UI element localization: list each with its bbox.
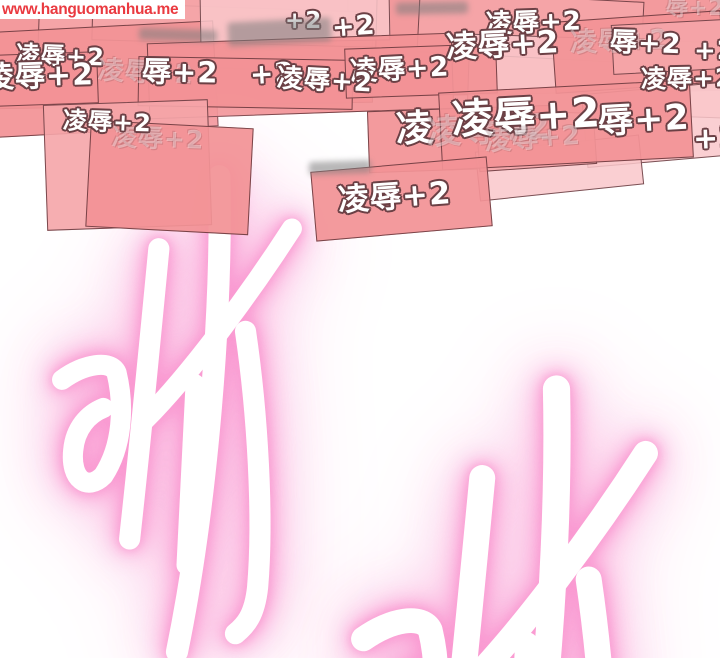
popup-label: 凌辱+2 — [337, 178, 452, 217]
popup-label: +2 — [692, 123, 720, 155]
site-watermark: www.hanguomanhua.me — [0, 0, 185, 19]
censored-blur-patch — [309, 160, 371, 175]
popup-label: 凌辱+2 — [445, 27, 560, 64]
sfx-whoosh-glyph-2 — [346, 384, 668, 658]
popup-label: 辱+2 — [610, 29, 682, 58]
popup-label: 凌辱+2 — [276, 66, 373, 97]
popup-label: 凌辱+2 — [0, 60, 95, 94]
popup-label: +2 — [331, 12, 376, 42]
censored-blur-patch — [396, 1, 468, 14]
popup-label: 凌辱+2 — [63, 108, 153, 135]
popup-label: 辱+2 — [666, 0, 720, 20]
popup-label: 辱+2 — [597, 101, 690, 141]
comic-panel: www.hanguomanhua.me 凌辱+2凌辱+2凌辱+2辱+2+2凌辱+… — [0, 0, 720, 658]
sfx-whoosh-glyph-1 — [48, 172, 310, 656]
popup-label: 凌辱+2 — [484, 123, 581, 156]
popup-label: +2 — [694, 38, 720, 64]
popup-label: 凌辱+2 — [641, 65, 720, 92]
popup-label: 辱+2 — [142, 57, 219, 87]
